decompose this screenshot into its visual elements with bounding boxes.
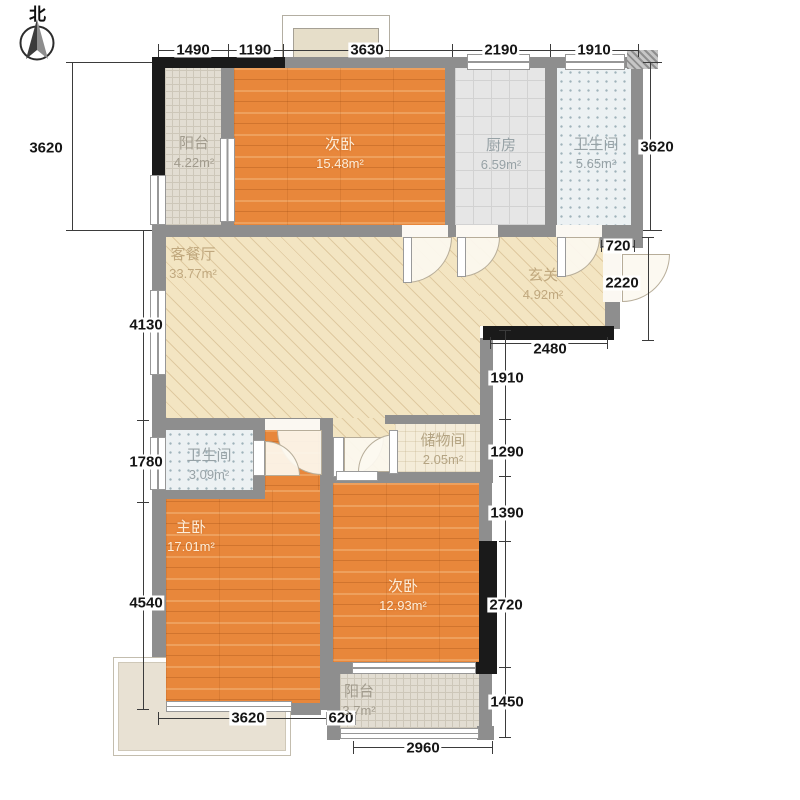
tick: [492, 741, 493, 754]
tick: [452, 44, 453, 57]
column: [627, 50, 658, 69]
room-label-bedroom-top: 次卧 15.48m²: [316, 136, 364, 172]
accent-wall: [152, 57, 165, 175]
tick: [499, 541, 511, 542]
room-label-balcony-top: 阳台 4.22m²: [174, 135, 214, 171]
room-label-bedroom-bottom: 次卧 12.93m²: [379, 578, 427, 614]
room-name: 次卧: [316, 136, 364, 154]
room-label-storage: 储物间 2.05m²: [420, 432, 465, 468]
door-opening: [456, 225, 498, 237]
tick: [66, 62, 78, 63]
room-label-master: 主卧 17.01m²: [167, 519, 215, 555]
accent-wall: [152, 57, 285, 68]
room-area: 15.48m²: [316, 156, 364, 172]
room-label-balcony-bottom: 阳台 3.7m²: [342, 683, 375, 719]
room-label-kitchen: 厨房 6.59m²: [481, 137, 521, 173]
tick: [642, 237, 654, 238]
room-name: 主卧: [167, 519, 215, 537]
wall: [480, 338, 493, 483]
room-area: 33.77m²: [169, 266, 217, 282]
wall: [545, 68, 557, 237]
room-name: 阳台: [174, 135, 214, 153]
room-name: 玄关: [523, 267, 563, 285]
tick: [550, 44, 551, 57]
room-name: 厨房: [481, 137, 521, 155]
tick: [158, 44, 159, 57]
tick: [158, 712, 159, 725]
tick: [607, 337, 608, 349]
wall: [477, 726, 494, 740]
room-label-living: 客餐厅 33.77m²: [169, 246, 217, 282]
compass-label: 北: [29, 0, 46, 25]
dim-label: 3620: [638, 140, 675, 155]
room-label-bathroom-mid: 卫生间 3.09m²: [186, 447, 231, 483]
dim-label: 1780: [127, 455, 164, 470]
dim-label: 1290: [488, 445, 525, 460]
dim-label: 4130: [127, 318, 164, 333]
tick: [499, 737, 511, 738]
room-name: 阳台: [342, 683, 375, 701]
tick: [634, 240, 635, 252]
room-area: 3.7m²: [342, 703, 375, 719]
room-name: 次卧: [379, 578, 427, 596]
tick: [499, 476, 511, 477]
floor-plan: 1490 1190 3630 2190 1910 3620 4130 1780 …: [0, 0, 800, 800]
dim-label: 2480: [531, 342, 568, 357]
room-area: 4.22m²: [174, 155, 214, 171]
room-area: 5.65m²: [573, 156, 618, 172]
tick: [638, 44, 639, 57]
tick: [283, 44, 284, 57]
accent-wall: [483, 326, 614, 340]
dim-label: 2190: [482, 43, 519, 58]
door-leaf: [253, 440, 265, 476]
door-leaf: [457, 237, 466, 277]
room-area: 2.05m²: [420, 452, 465, 468]
bedroom-bottom-floor: [333, 483, 479, 662]
tick: [228, 44, 229, 57]
dimension-line: [72, 62, 73, 230]
room-name: 储物间: [420, 432, 465, 450]
door-opening: [265, 419, 320, 430]
dim-label: 1450: [488, 695, 525, 710]
tick: [490, 337, 491, 349]
tick: [66, 230, 78, 231]
window: [150, 175, 166, 225]
door-leaf: [336, 471, 378, 481]
tick: [499, 330, 511, 331]
dim-label: 2960: [404, 741, 441, 756]
room-area: 17.01m²: [167, 539, 215, 555]
room-label-hall: 玄关 4.92m²: [523, 267, 563, 303]
balcony-door-window: [220, 138, 235, 222]
tick: [137, 709, 149, 710]
room-label-bathroom-top: 卫生间 5.65m²: [573, 136, 618, 172]
wall: [385, 415, 480, 424]
dim-label: 720: [603, 239, 632, 254]
tick: [499, 419, 511, 420]
room-area: 6.59m²: [481, 157, 521, 173]
door-opening: [556, 225, 602, 237]
dim-label: 1910: [575, 43, 612, 58]
tick: [499, 667, 511, 668]
room-area: 3.09m²: [186, 467, 231, 483]
dim-label: 3630: [348, 43, 385, 58]
dim-label: 1490: [174, 43, 211, 58]
tick: [137, 502, 149, 503]
dim-label: 1190: [237, 43, 274, 58]
door-leaf: [389, 430, 398, 474]
dimension-line: [505, 330, 506, 737]
dim-label: 3620: [27, 141, 64, 156]
balcony-railing: [340, 728, 479, 739]
compass: 北: [10, 2, 66, 64]
room-name: 卫生间: [186, 447, 231, 465]
dim-label: 1910: [488, 371, 525, 386]
dimension-line: [648, 237, 649, 340]
tick: [642, 340, 654, 341]
room-name: 卫生间: [573, 136, 618, 154]
wall: [327, 672, 340, 740]
door-leaf: [403, 237, 412, 283]
dim-label: 2220: [603, 276, 640, 291]
tick: [137, 420, 149, 421]
dimension-line: [158, 50, 638, 51]
tick: [644, 62, 656, 63]
dim-label: 4540: [127, 596, 164, 611]
wall: [152, 490, 265, 499]
wall: [445, 68, 455, 237]
dim-label: 2720: [487, 598, 524, 613]
room-name: 客餐厅: [169, 246, 217, 264]
tick: [353, 741, 354, 754]
door-opening: [402, 225, 448, 237]
window: [352, 662, 476, 674]
witness-line: [66, 62, 152, 63]
dim-label: 1390: [488, 506, 525, 521]
room-area: 4.92m²: [523, 287, 563, 303]
room-area: 12.93m²: [379, 598, 427, 614]
tick: [644, 230, 656, 231]
tick: [601, 240, 602, 252]
dim-label: 3620: [229, 711, 266, 726]
tick: [137, 230, 149, 231]
wall: [291, 703, 321, 715]
